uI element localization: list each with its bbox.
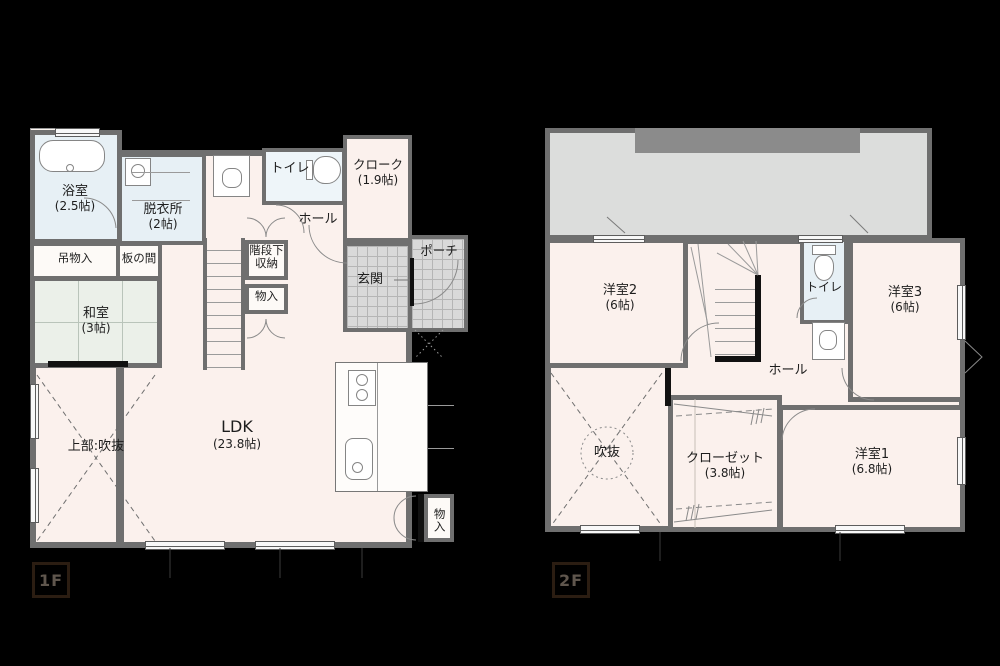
stair-wall-bar <box>755 275 761 362</box>
stove-burner-icon <box>356 389 368 401</box>
hanging-storage-label: 吊物入 <box>40 252 110 266</box>
bath-label: 浴室 (2.5帖) <box>42 184 108 213</box>
board-room-label: 板の間 <box>118 252 160 266</box>
window <box>957 437 966 485</box>
window <box>255 541 335 550</box>
closet-door-bar <box>48 361 128 367</box>
shelf-line <box>428 405 454 406</box>
entrance-step-cross <box>415 330 443 358</box>
floor2-tag: 2F <box>552 562 590 598</box>
window <box>145 541 225 550</box>
closet-label: クローゼット (3.8帖) <box>675 451 775 480</box>
void-above-label: 上部:吹抜 <box>46 439 146 454</box>
stair-wall-bar <box>715 356 761 362</box>
stairs-2f <box>715 277 759 359</box>
stairs-1f <box>203 238 245 370</box>
washbasin-bowl-icon <box>819 330 837 350</box>
hall-1f-label: ホール <box>290 212 346 227</box>
toilet-1f-label: トイレ <box>268 161 312 176</box>
hall-2f-label: ホール <box>760 363 816 378</box>
cloak-label: クローク (1.9帖) <box>345 158 411 187</box>
floor1-tag: 1F <box>32 562 70 598</box>
dimension-ticks <box>170 548 362 578</box>
washer-drum-icon <box>131 164 145 178</box>
storage-hall-label: 物入 <box>248 290 285 304</box>
dressing-label: 脱衣所 (2帖) <box>130 202 196 231</box>
bath-drain-icon <box>66 164 74 172</box>
sink-icon <box>345 438 373 480</box>
entrance-label: 玄関 <box>348 272 392 287</box>
room-western3 <box>848 238 965 402</box>
window <box>30 468 39 523</box>
room-cloak <box>343 135 412 242</box>
roof-band <box>635 128 860 153</box>
sink-faucet-icon <box>352 462 363 473</box>
storage-kitchen-label: 物入 <box>432 502 446 538</box>
western3-label: 洋室3 (6帖) <box>872 285 938 314</box>
towel-bar <box>132 200 190 201</box>
window <box>580 525 640 534</box>
western2-label: 洋室2 (6帖) <box>587 283 653 312</box>
toilet-tank-icon <box>812 245 836 255</box>
window <box>798 235 843 243</box>
washbasin-bowl-icon <box>222 168 242 188</box>
stove-burner-icon <box>356 374 368 386</box>
void-2f-label: 吹抜 <box>567 445 647 460</box>
void-wall-bar <box>665 368 671 406</box>
window <box>30 384 39 439</box>
window-chevron <box>965 341 982 373</box>
toilet-bowl-icon <box>814 255 834 281</box>
towel-bar <box>132 172 190 173</box>
window <box>957 285 966 340</box>
floor1-plan: 浴室 (2.5帖) 脱衣所 (2帖) トイレ クローク (1.9帖) ホール 吊… <box>30 128 470 588</box>
ldk-label: LDK (23.8帖) <box>197 418 277 451</box>
kitchen-counter-divider <box>377 363 378 491</box>
toilet-2f-label: トイレ <box>801 280 847 294</box>
floor2-plan: 洋室2 (6帖) トイレ 洋室3 (6帖) ホール 吹抜 クローゼット (3.8… <box>545 125 985 570</box>
window <box>593 235 645 243</box>
dimension-ticks <box>660 532 840 561</box>
window <box>55 128 100 137</box>
floor-plan-canvas: { "floor1": { "tag": "1F", "rooms": { "b… <box>0 0 1000 666</box>
window <box>835 525 905 534</box>
japanese-room-label: 和室 (3帖) <box>63 306 129 335</box>
shelf-line <box>428 448 454 449</box>
toilet-bowl-icon <box>313 156 341 184</box>
western1-label: 洋室1 (6.8帖) <box>832 447 912 476</box>
under-stair-storage-label: 階段下収納 <box>248 244 285 270</box>
porch-label: ポーチ <box>415 244 463 259</box>
